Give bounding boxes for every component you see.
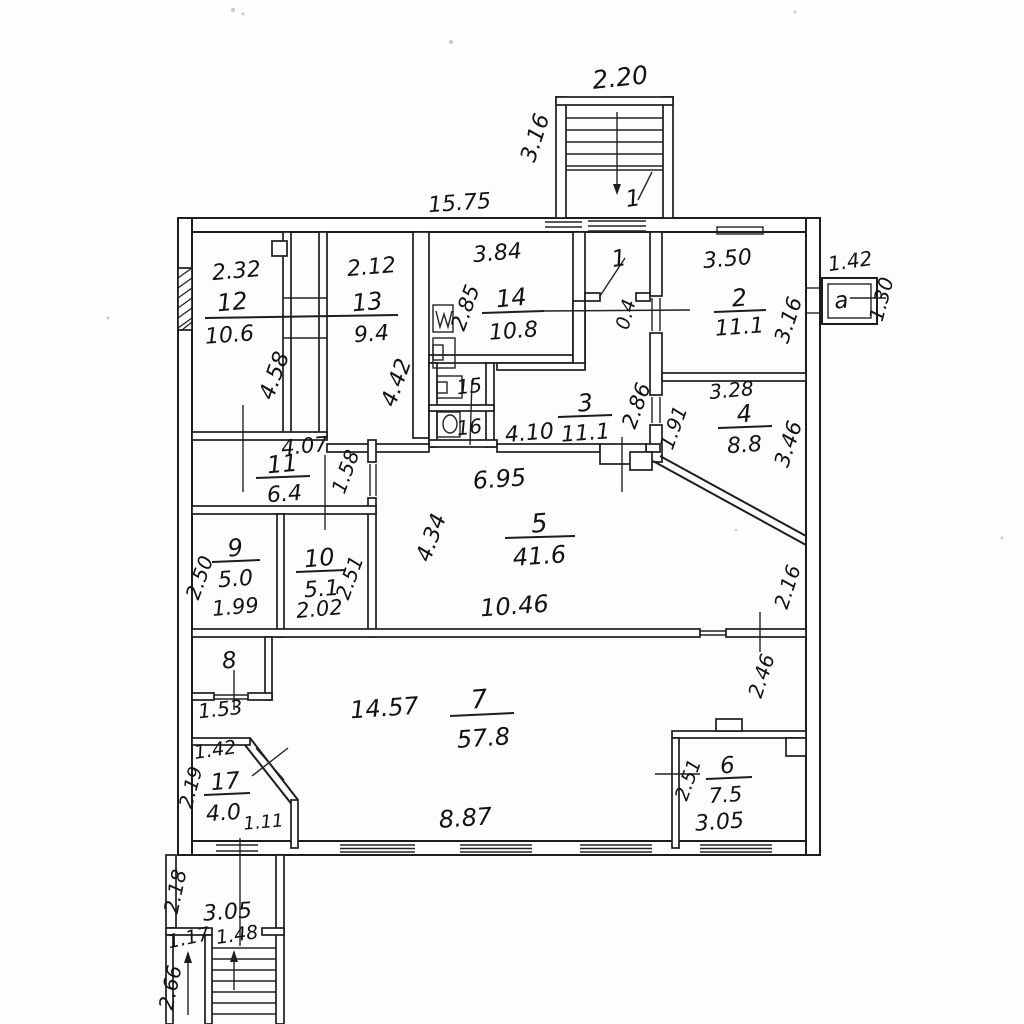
room-7-number: 7	[470, 684, 490, 715]
annex-letter: a	[833, 287, 850, 314]
dim-annex-width: 1.42	[826, 246, 873, 276]
dim-vestibule-width: 0.4	[612, 297, 641, 332]
room-9-number: 9	[226, 533, 244, 562]
room-6-number: 6	[719, 752, 736, 779]
scanned-floor-plan-page: 12 10.6 13 9.4 14 10.8 1 1 2 11.1 4 8.8 …	[0, 0, 1024, 1024]
dim-room9-width: 1.99	[211, 593, 260, 621]
dim-right-wall-lower: 2.46	[743, 651, 780, 701]
room-2-area: 11.1	[714, 313, 765, 341]
room-7-area: 57.8	[456, 722, 511, 754]
dim-room5-height: 4.34	[412, 510, 452, 565]
dim-room12-width: 2.32	[211, 257, 262, 286]
dim-room10-width: 2.02	[295, 595, 344, 623]
room-1-vestibule-number: 1	[610, 245, 628, 273]
room-9-area: 5.0	[217, 566, 254, 593]
room-14-area: 10.8	[488, 317, 539, 345]
room-17-area: 4.0	[205, 800, 242, 827]
room-4-area: 8.8	[726, 432, 763, 459]
room-10-number: 10	[303, 543, 336, 574]
dim-top-wall: 15.75	[427, 189, 492, 218]
dim-room14-height: 2.85	[446, 282, 485, 334]
dim-room4-width: 3.28	[708, 376, 754, 404]
left-wall-hatch	[178, 268, 192, 330]
room-2-number: 2	[730, 283, 748, 312]
floor-plan-drawing: 12 10.6 13 9.4 14 10.8 1 1 2 11.1 4 8.8 …	[0, 0, 1024, 1024]
dim-room14-width: 3.84	[472, 239, 523, 268]
room-11-area: 6.4	[266, 481, 303, 508]
dim-right-wall-upper: 2.16	[769, 562, 806, 612]
entrance-stair-top	[556, 97, 673, 218]
dim-stair-length: 3.16	[516, 111, 555, 165]
dim-room11-height: 1.58	[327, 447, 365, 497]
dim-room7-width-bottom: 8.87	[438, 802, 494, 834]
room-15-number: 15	[455, 373, 483, 400]
dim-room13-height: 4.42	[377, 355, 417, 410]
room-16-number: 16	[455, 414, 483, 441]
dim-room13-width: 2.12	[346, 253, 397, 282]
dim-room8-width: 1.53	[197, 695, 244, 724]
room-13-area: 9.4	[353, 321, 390, 348]
dim-entry-stairs-width: 1.48	[215, 921, 260, 949]
entry-arrow-side	[184, 951, 192, 1015]
dim-entry-stairs-length: 2.66	[154, 963, 187, 1012]
dim-room3-width: 4.10	[504, 419, 555, 448]
dim-room2-width: 3.50	[702, 245, 753, 274]
room-14-number: 14	[495, 283, 528, 314]
dim-room2-height: 3.16	[770, 294, 807, 346]
room-17-number: 17	[210, 768, 242, 796]
room-3-area: 11.1	[560, 419, 611, 447]
dim-room17-width-bottom: 1.11	[243, 810, 285, 834]
room-4-number: 4	[735, 399, 753, 428]
room-13-number: 13	[351, 287, 384, 318]
room-6-area: 7.5	[708, 782, 743, 808]
room-12-area: 10.6	[204, 321, 255, 349]
dim-stair-width: 2.20	[591, 60, 649, 95]
room-1-landing-number: 1	[624, 185, 642, 213]
room-12-number: 12	[216, 287, 249, 318]
dim-room6-width: 3.05	[694, 808, 745, 836]
dimension-labels: 2.20 3.16 15.75 1.42 1.30 2.32 4.58 2.12…	[154, 60, 899, 1012]
room-5-area: 41.6	[512, 540, 567, 572]
landing-door-swing	[638, 172, 652, 200]
room-3-number: 3	[576, 388, 594, 417]
dim-room3-height: 2.86	[617, 380, 656, 432]
dim-room10-height: 2.51	[331, 553, 369, 603]
room-8-number: 8	[221, 647, 238, 674]
dim-room4-height-right: 3.46	[770, 418, 807, 470]
dim-room11-width: 4.07	[280, 432, 329, 460]
room-5-number: 5	[530, 508, 549, 539]
dim-room17-width-top: 1.42	[193, 736, 238, 764]
dim-room5-width-top: 6.95	[472, 463, 527, 495]
dim-room5-width-bottom: 10.46	[479, 590, 550, 623]
dim-porch-height: 2.18	[159, 867, 192, 916]
dim-room7-width: 14.57	[349, 692, 420, 725]
